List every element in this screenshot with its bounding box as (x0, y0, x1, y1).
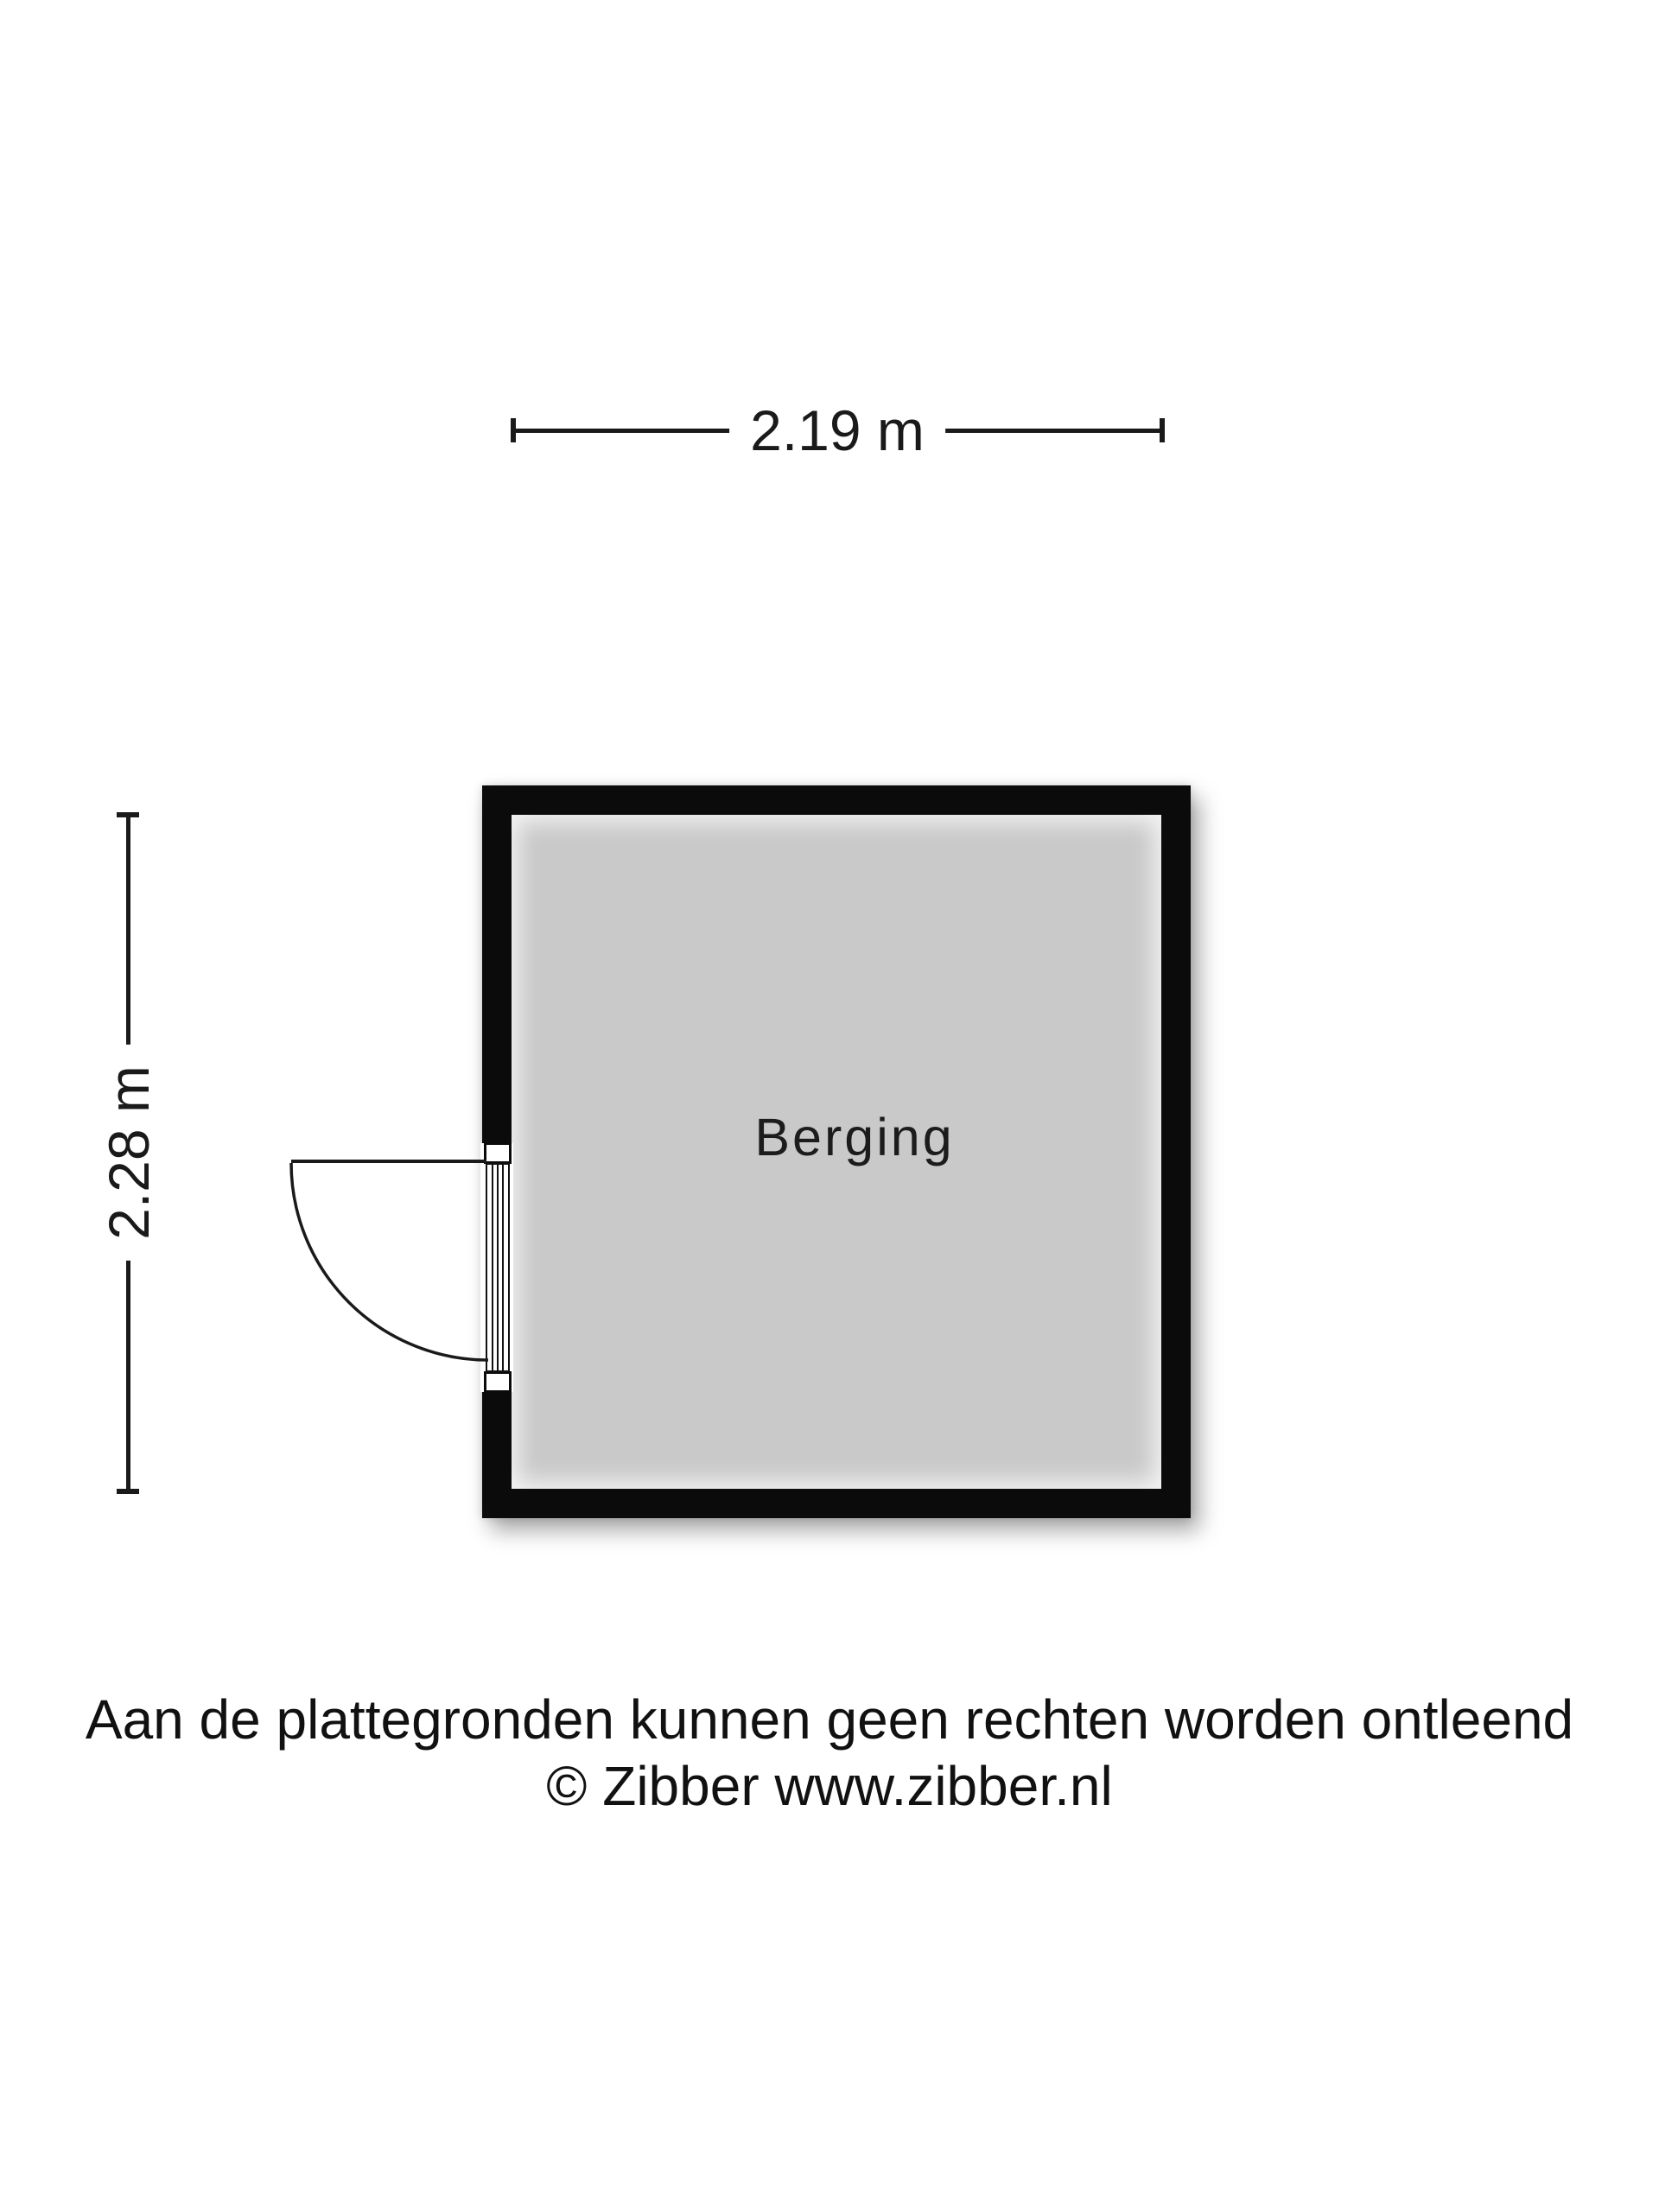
room-label: Berging (512, 1107, 1161, 1167)
door-frame-top (484, 1142, 512, 1164)
dimension-width-tick-right (1160, 418, 1165, 442)
dimension-width-tick-left (511, 418, 516, 442)
footer-disclaimer: Aan de plattegronden kunnen geen rechten… (0, 1687, 1659, 1753)
door-leaf (486, 1163, 510, 1372)
dimension-height-tick-top (117, 812, 139, 817)
room-berging: Berging (482, 785, 1191, 1518)
footer-copyright: © Zibber www.zibber.nl (0, 1753, 1659, 1820)
footer: Aan de plattegronden kunnen geen rechten… (0, 1687, 1659, 1820)
door-frame-bottom (484, 1371, 512, 1393)
dimension-width-label: 2.19 m (729, 397, 945, 463)
room-floor: Berging (512, 815, 1161, 1489)
dimension-height-tick-bottom (117, 1489, 139, 1494)
dimension-height-label: 2.28 m (96, 1045, 162, 1261)
floorplan-page: 2.19 m 2.28 m Berging Aan de plattegrond… (0, 0, 1659, 2212)
